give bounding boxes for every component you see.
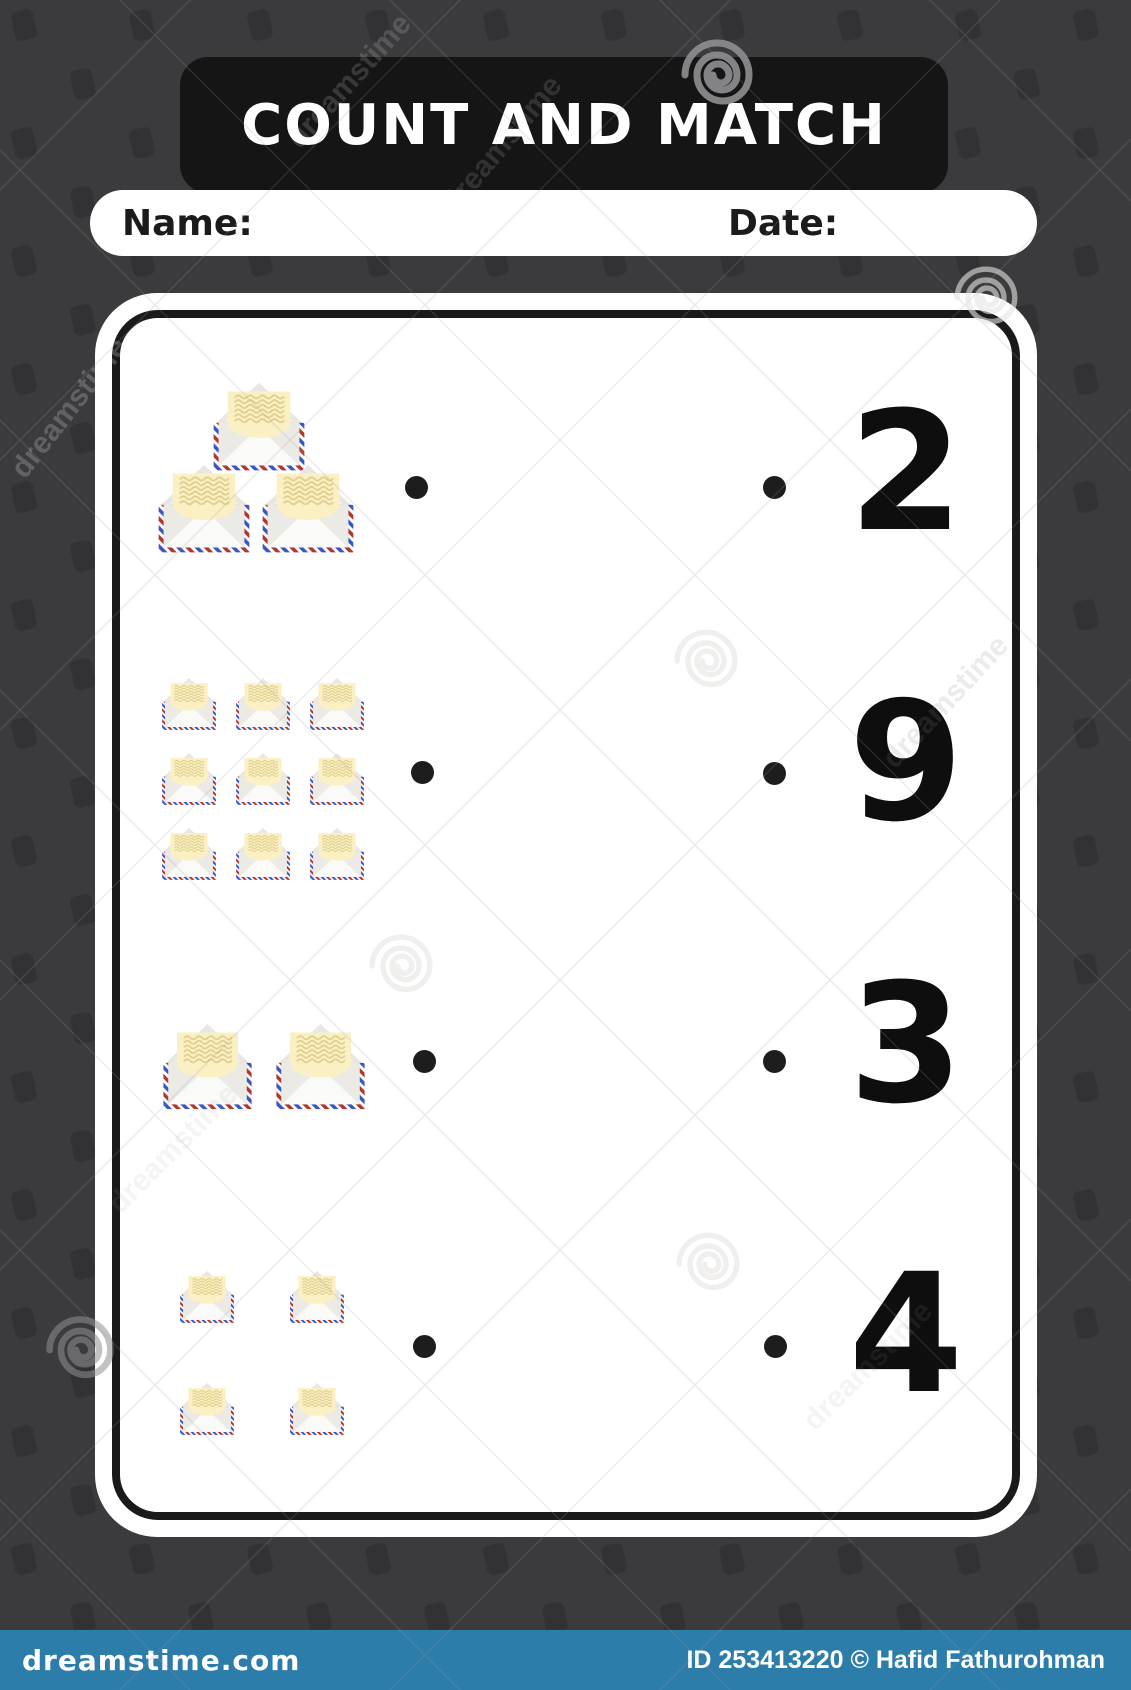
match-dot-left-row-1[interactable] — [405, 476, 428, 499]
number-row-4: 4 — [845, 1252, 967, 1417]
envelope-icon — [231, 748, 295, 808]
footer-site-text: dreamstime.com — [22, 1644, 300, 1677]
name-field[interactable] — [240, 198, 680, 248]
date-field[interactable] — [830, 198, 1010, 248]
number-row-2: 9 — [845, 680, 967, 845]
envelope-group-row-4 — [175, 1266, 349, 1438]
envelope-icon — [268, 1015, 373, 1115]
match-dot-right-row-1[interactable] — [763, 476, 786, 499]
envelope-icon — [157, 823, 221, 883]
envelope-icon — [254, 457, 362, 557]
envelope-group-row-1 — [150, 375, 364, 557]
envelope-icon — [157, 748, 221, 808]
name-date-bar: Name: Date: — [90, 190, 1037, 256]
envelope-icon — [305, 823, 369, 883]
envelope-icon — [285, 1378, 349, 1438]
match-dot-right-row-4[interactable] — [764, 1335, 787, 1358]
match-dot-right-row-2[interactable] — [763, 762, 786, 785]
match-dot-right-row-3[interactable] — [763, 1050, 786, 1073]
envelope-icon — [231, 823, 295, 883]
envelope-icon — [157, 673, 221, 733]
envelope-icon — [175, 1266, 239, 1326]
worksheet-page: COUNT AND MATCH Name: Date: 2 9 3 4 drea… — [0, 0, 1131, 1690]
name-label: Name: — [122, 190, 253, 256]
envelope-icon — [155, 1015, 260, 1115]
envelope-icon — [305, 673, 369, 733]
footer-bar: dreamstime.com ID 253413220 © Hafid Fath… — [0, 1630, 1131, 1690]
footer-credit-text: ID 253413220 © Hafid Fathurohman — [686, 1646, 1105, 1675]
envelope-icon — [231, 673, 295, 733]
envelope-group-row-2 — [157, 673, 369, 883]
match-dot-left-row-2[interactable] — [411, 761, 434, 784]
envelope-icon — [285, 1266, 349, 1326]
number-row-3: 3 — [845, 962, 967, 1127]
envelope-icon — [150, 457, 258, 557]
date-label: Date: — [728, 190, 838, 256]
number-row-1: 2 — [845, 390, 967, 555]
envelope-icon — [175, 1378, 239, 1438]
match-dot-left-row-3[interactable] — [413, 1050, 436, 1073]
envelope-icon — [305, 748, 369, 808]
envelope-group-row-3 — [155, 1015, 373, 1115]
title-box: COUNT AND MATCH — [180, 57, 948, 193]
page-title: COUNT AND MATCH — [241, 93, 887, 158]
match-dot-left-row-4[interactable] — [413, 1335, 436, 1358]
